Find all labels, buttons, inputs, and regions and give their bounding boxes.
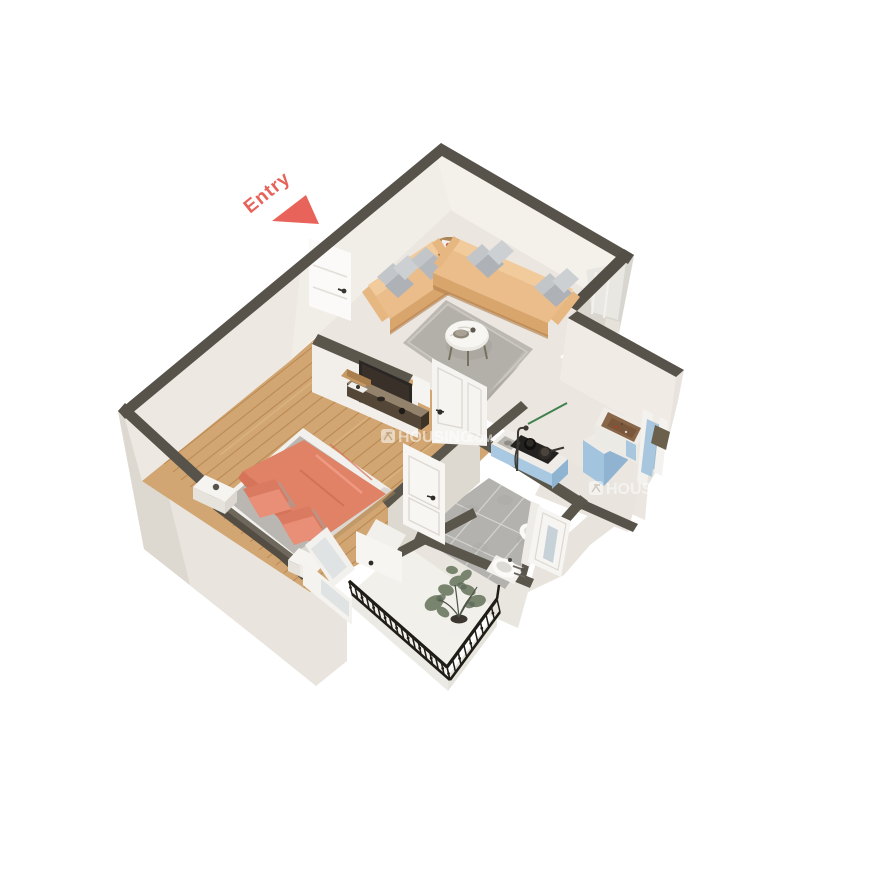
svg-text:.COM: .COM — [672, 485, 701, 497]
svg-text:.COM: .COM — [464, 433, 493, 445]
svg-text:HOUSING: HOUSING — [606, 481, 681, 498]
svg-text:HOUSING: HOUSING — [398, 429, 473, 446]
